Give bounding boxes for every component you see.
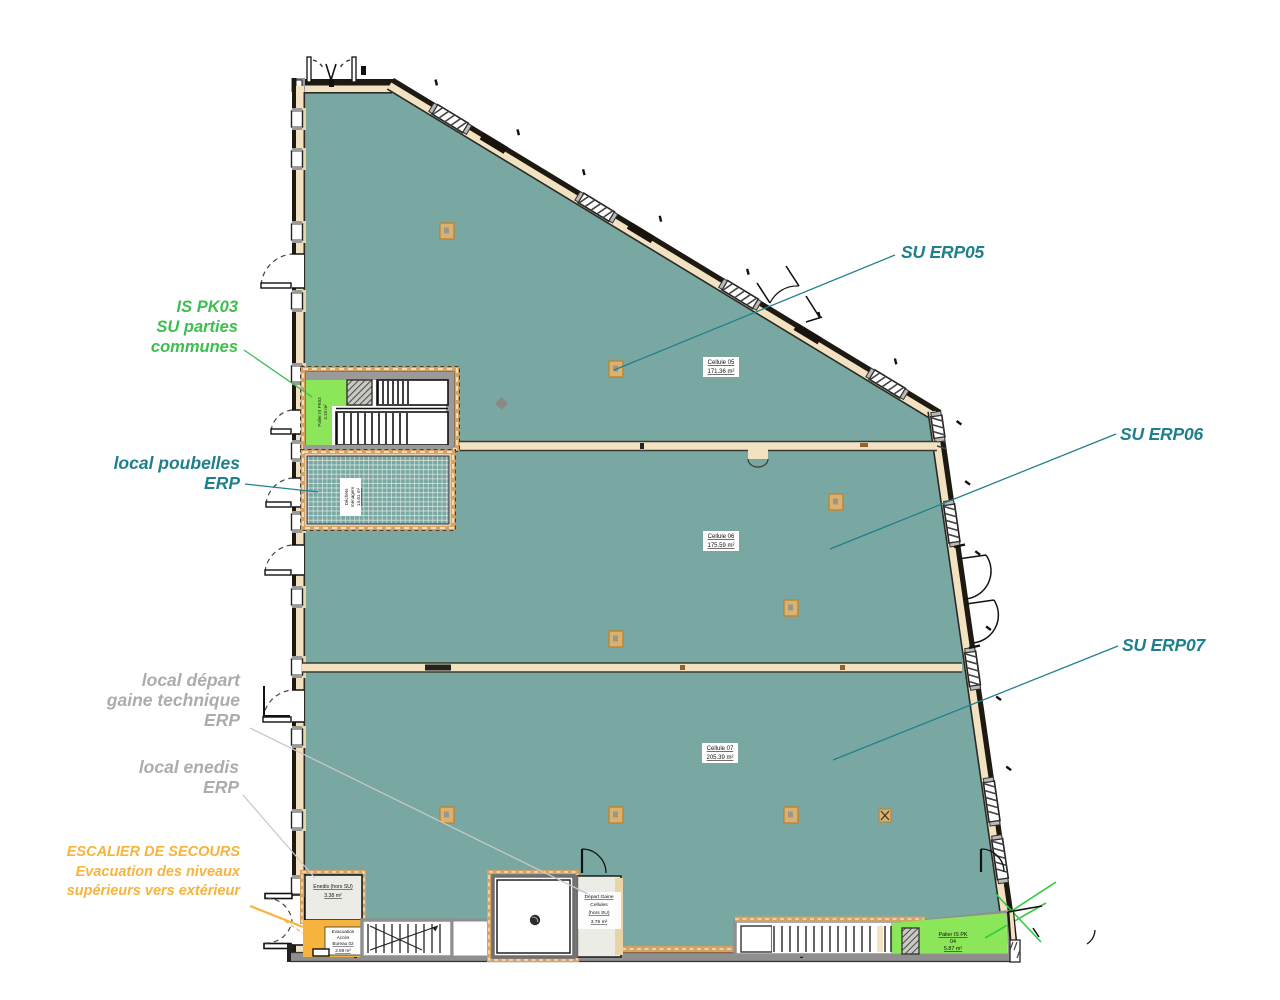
- svg-text:Déchets: Déchets: [344, 488, 349, 506]
- svg-text:(hors SU): (hors SU): [589, 910, 610, 916]
- svg-text:communes: communes: [151, 338, 238, 356]
- svg-text:ERP: ERP: [204, 473, 240, 493]
- svg-text:Enedis (hors SU): Enedis (hors SU): [313, 884, 353, 890]
- svg-text:04: 04: [950, 939, 956, 945]
- svg-text:ménagers: ménagers: [350, 486, 355, 507]
- svg-text:14.61 m²: 14.61 m²: [356, 487, 361, 506]
- svg-text:Evacuation: Evacuation: [332, 929, 355, 934]
- svg-text:IS PK03: IS PK03: [177, 298, 238, 316]
- svg-text:171.36 m²: 171.36 m²: [707, 369, 734, 375]
- svg-text:local poubelles: local poubelles: [114, 453, 241, 473]
- svg-text:SU parties: SU parties: [156, 318, 238, 336]
- svg-text:ESCALIER DE SECOURS: ESCALIER DE SECOURS: [67, 844, 241, 860]
- svg-text:5.87 m²: 5.87 m²: [944, 946, 962, 952]
- svg-text:3.38 m²: 3.38 m²: [324, 893, 342, 899]
- svg-text:Palier IS PK03: Palier IS PK03: [317, 397, 322, 427]
- svg-text:local départ: local départ: [142, 670, 241, 690]
- svg-text:gaine technique: gaine technique: [106, 690, 240, 710]
- svg-text:Départ Gaine: Départ Gaine: [584, 894, 613, 900]
- svg-text:SU ERP07: SU ERP07: [1122, 635, 1206, 655]
- svg-text:Evacuation des niveaux: Evacuation des niveaux: [76, 864, 241, 880]
- svg-text:175.59 m²: 175.59 m²: [707, 543, 734, 549]
- svg-text:Palier IS PK: Palier IS PK: [938, 932, 967, 938]
- svg-text:3.76 m²: 3.76 m²: [591, 919, 608, 925]
- svg-text:SU ERP05: SU ERP05: [901, 242, 984, 262]
- svg-text:Cellule 06: Cellule 06: [708, 534, 735, 540]
- svg-text:Accès: Accès: [337, 935, 350, 940]
- svg-text:supérieurs vers extérieur: supérieurs vers extérieur: [67, 883, 242, 899]
- svg-text:Cellule 07: Cellule 07: [707, 746, 734, 752]
- svg-text:ERP: ERP: [204, 710, 240, 730]
- svg-text:Bureau 02: Bureau 02: [332, 941, 354, 946]
- svg-text:205.39 m²: 205.39 m²: [706, 755, 733, 761]
- svg-text:ERP: ERP: [203, 777, 239, 797]
- svg-text:4.10 m²: 4.10 m²: [323, 404, 328, 420]
- svg-text:SU ERP06: SU ERP06: [1120, 424, 1203, 444]
- svg-text:Cellule 05: Cellule 05: [708, 360, 735, 366]
- svg-text:2.98 m²: 2.98 m²: [335, 948, 351, 953]
- svg-text:Cellules: Cellules: [590, 902, 608, 908]
- svg-text:local enedis: local enedis: [139, 757, 239, 777]
